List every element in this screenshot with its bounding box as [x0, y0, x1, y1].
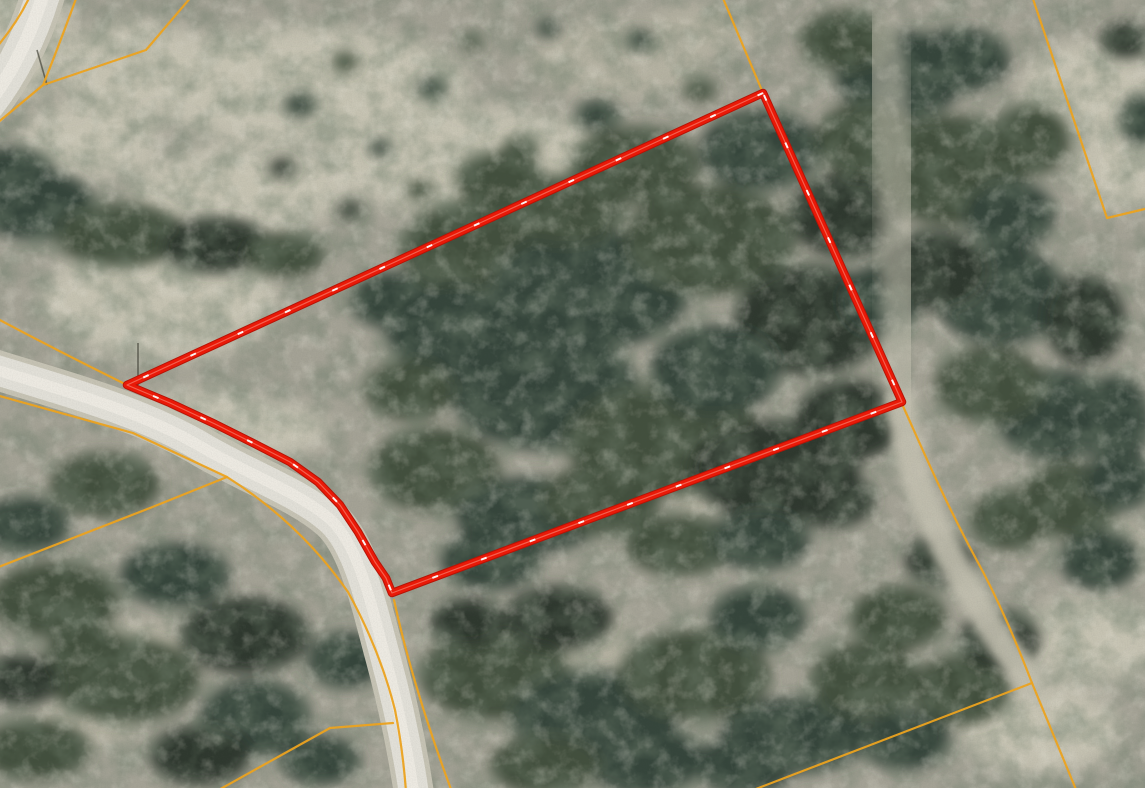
photo-grain — [0, 0, 1145, 788]
map-canvas — [0, 0, 1145, 788]
aerial-map[interactable] — [0, 0, 1145, 788]
